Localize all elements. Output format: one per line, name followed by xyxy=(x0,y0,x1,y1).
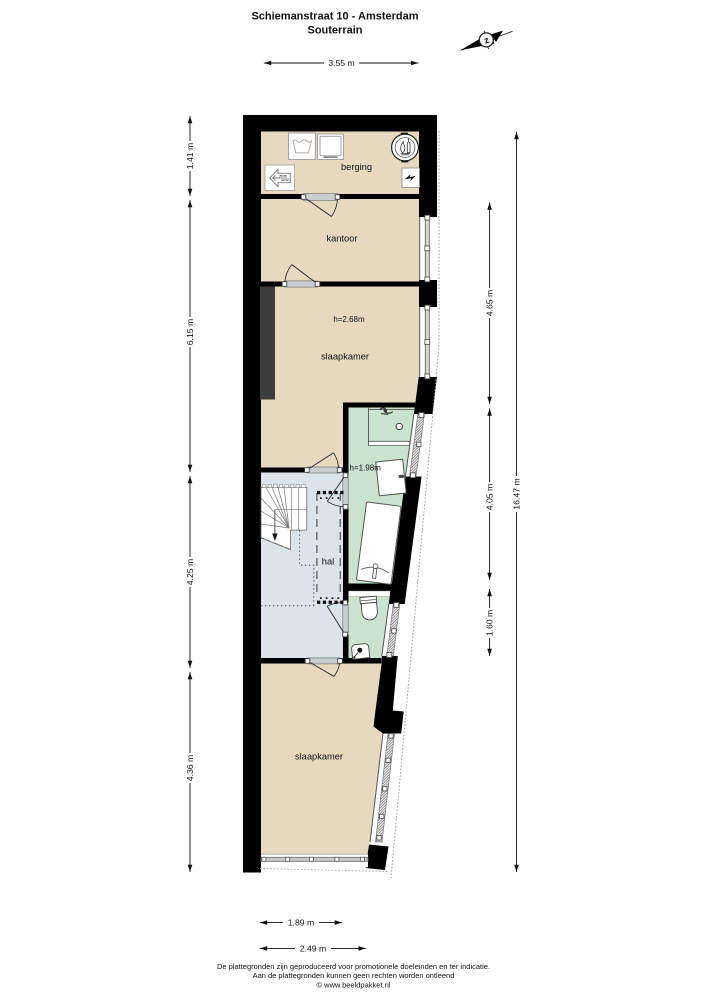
svg-text:16.47 m: 16.47 m xyxy=(512,478,522,509)
svg-text:3.55 m: 3.55 m xyxy=(328,58,355,68)
svg-text:slaapkamer: slaapkamer xyxy=(295,751,343,761)
svg-text:Aan de plattegronden kunnen ge: Aan de plattegronden kunnen geen rechten… xyxy=(253,971,455,980)
svg-text:4.25 m: 4.25 m xyxy=(185,559,195,586)
svg-text:2.49 m: 2.49 m xyxy=(300,943,327,953)
svg-text:berging: berging xyxy=(341,162,372,172)
svg-text:h=1.98m: h=1.98m xyxy=(350,463,382,472)
svg-text:6.15 m: 6.15 m xyxy=(185,319,195,346)
svg-text:4.65 m: 4.65 m xyxy=(485,290,495,317)
svg-text:4.36 m: 4.36 m xyxy=(185,755,195,782)
svg-text:hal: hal xyxy=(322,557,334,567)
svg-text:© www.beeldpakket.nl: © www.beeldpakket.nl xyxy=(317,981,391,990)
svg-text:1.41 m: 1.41 m xyxy=(185,143,195,170)
svg-text:Souterrain: Souterrain xyxy=(307,25,362,37)
svg-text:4.05 m: 4.05 m xyxy=(485,484,495,511)
svg-text:kantoor: kantoor xyxy=(326,233,357,243)
svg-text:De plattegronden zijn geproduc: De plattegronden zijn geproduceerd voor … xyxy=(217,962,490,971)
svg-text:slaapkamer: slaapkamer xyxy=(321,351,369,361)
svg-text:h=2.68m: h=2.68m xyxy=(333,315,365,324)
svg-text:Schiemanstraat 10 - Amsterdam: Schiemanstraat 10 - Amsterdam xyxy=(251,11,418,23)
svg-text:1.89 m: 1.89 m xyxy=(288,918,315,928)
svg-text:1.60 m: 1.60 m xyxy=(485,610,495,637)
